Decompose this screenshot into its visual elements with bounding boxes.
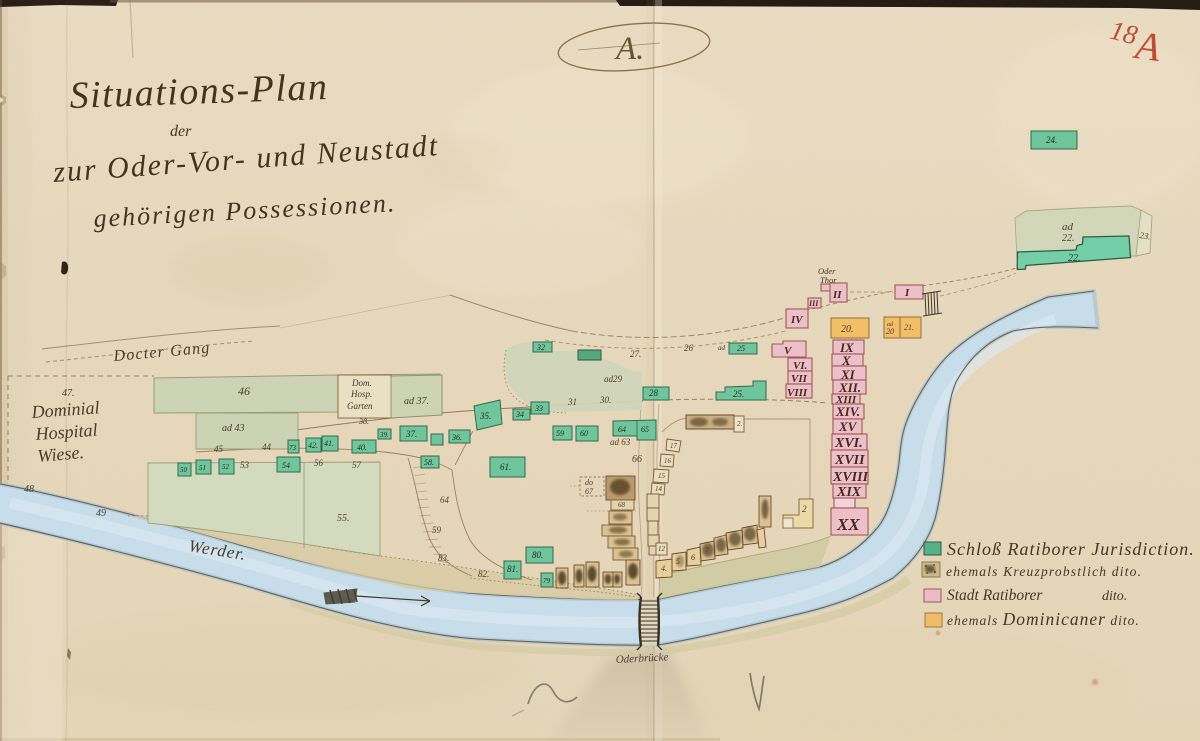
svg-text:47.: 47. xyxy=(62,388,75,399)
svg-text:20: 20 xyxy=(886,327,894,336)
svg-text:II: II xyxy=(832,289,842,301)
svg-text:35.: 35. xyxy=(479,411,491,421)
svg-text:IV: IV xyxy=(790,314,804,326)
svg-text:81.: 81. xyxy=(507,564,518,574)
svg-text:59: 59 xyxy=(556,429,564,438)
svg-text:45: 45 xyxy=(214,444,224,454)
svg-text:79: 79 xyxy=(543,577,551,585)
svg-text:2.: 2. xyxy=(737,420,743,428)
svg-text:55.: 55. xyxy=(337,513,350,524)
svg-text:20.: 20. xyxy=(841,324,854,335)
svg-text:64: 64 xyxy=(618,425,626,434)
svg-text:65: 65 xyxy=(641,425,649,434)
svg-text:44: 44 xyxy=(262,442,272,452)
svg-text:14: 14 xyxy=(655,485,663,493)
svg-text:X: X xyxy=(841,353,851,368)
svg-text:ad 37.: ad 37. xyxy=(404,396,429,407)
svg-text:40.: 40. xyxy=(357,443,367,452)
svg-text:VI.: VI. xyxy=(793,360,807,372)
svg-text:15: 15 xyxy=(658,472,666,480)
svg-text:XX: XX xyxy=(836,515,860,534)
svg-text:53: 53 xyxy=(240,460,250,470)
svg-text:42.: 42. xyxy=(308,441,318,450)
svg-text:24.: 24. xyxy=(1046,135,1057,145)
svg-text:22.: 22. xyxy=(1068,253,1081,264)
svg-text:26: 26 xyxy=(684,343,694,353)
svg-text:VIII: VIII xyxy=(787,387,808,399)
svg-text:XVII: XVII xyxy=(834,453,865,468)
svg-text:ad 43: ad 43 xyxy=(222,423,245,434)
svg-text:Stadt Ratiborer: Stadt Ratiborer xyxy=(947,587,1043,604)
svg-text:31: 31 xyxy=(567,397,577,407)
svg-text:56: 56 xyxy=(314,458,324,468)
svg-text:dito.: dito. xyxy=(1102,589,1127,604)
svg-text:XVI.: XVI. xyxy=(834,436,863,451)
svg-text:36.: 36. xyxy=(451,433,462,442)
svg-text:XV: XV xyxy=(838,419,858,434)
svg-text:VII: VII xyxy=(791,373,808,385)
svg-text:III: III xyxy=(808,299,819,308)
svg-text:22.: 22. xyxy=(1062,233,1075,244)
svg-text:23.: 23. xyxy=(1139,230,1152,241)
svg-text:Thor: Thor xyxy=(820,275,837,285)
svg-text:38.: 38. xyxy=(358,417,369,426)
svg-text:58.: 58. xyxy=(424,458,434,467)
svg-text:16: 16 xyxy=(664,457,672,465)
svg-text:82.: 82. xyxy=(478,569,489,579)
svg-text:ad 63: ad 63 xyxy=(610,437,631,447)
svg-text:I: I xyxy=(904,287,910,299)
svg-text:41.: 41. xyxy=(324,439,334,448)
svg-text:37.: 37. xyxy=(405,429,417,439)
svg-text:XII.: XII. xyxy=(838,380,861,395)
svg-text:Dom.: Dom. xyxy=(351,378,372,388)
svg-text:Hosp.: Hosp. xyxy=(350,389,372,399)
svg-text:ehemals Kreuzprobstlich dito.: ehemals Kreuzprobstlich dito. xyxy=(946,564,1142,579)
svg-text:46: 46 xyxy=(238,384,250,398)
svg-text:54: 54 xyxy=(282,461,290,470)
svg-text:Schloß Ratiborer Jurisdiction.: Schloß Ratiborer Jurisdiction. xyxy=(947,539,1195,559)
svg-text:30.: 30. xyxy=(599,395,611,405)
svg-text:6: 6 xyxy=(691,553,695,562)
svg-text:34: 34 xyxy=(515,410,524,419)
svg-text:60: 60 xyxy=(580,429,588,438)
svg-text:Wiese.: Wiese. xyxy=(37,442,85,466)
svg-text:21.: 21. xyxy=(904,323,914,332)
svg-text:57: 57 xyxy=(352,460,362,470)
svg-text:51: 51 xyxy=(199,464,206,472)
svg-text:80.: 80. xyxy=(532,550,543,560)
svg-text:2: 2 xyxy=(802,504,807,514)
svg-text:do: do xyxy=(585,478,593,487)
svg-text:5: 5 xyxy=(676,557,680,566)
svg-text:ad: ad xyxy=(718,344,726,352)
svg-text:4.: 4. xyxy=(661,564,667,573)
svg-text:48: 48 xyxy=(24,484,34,495)
svg-text:33: 33 xyxy=(534,404,543,413)
svg-text:XIV.: XIV. xyxy=(835,404,860,419)
svg-text:49: 49 xyxy=(96,508,106,519)
svg-text:59: 59 xyxy=(432,525,442,535)
svg-text:52: 52 xyxy=(222,463,230,471)
svg-text:ad: ad xyxy=(1062,221,1074,233)
svg-text:61.: 61. xyxy=(500,462,511,472)
svg-text:73: 73 xyxy=(289,444,297,452)
svg-text:A.: A. xyxy=(614,31,644,67)
svg-text:64: 64 xyxy=(440,495,450,505)
svg-text:12: 12 xyxy=(658,545,666,553)
svg-text:17: 17 xyxy=(670,442,678,450)
svg-text:67: 67 xyxy=(585,487,594,496)
svg-text:der: der xyxy=(170,123,192,140)
svg-text:25.: 25. xyxy=(733,389,744,399)
svg-text:ad29: ad29 xyxy=(604,374,623,384)
svg-text:50: 50 xyxy=(180,466,188,474)
svg-text:68: 68 xyxy=(618,501,626,509)
svg-text:25: 25 xyxy=(737,344,745,353)
svg-text:28: 28 xyxy=(649,388,659,398)
svg-text:83.: 83. xyxy=(438,553,449,563)
svg-text:XVIII: XVIII xyxy=(832,470,869,485)
svg-text:39.: 39. xyxy=(379,431,389,439)
svg-text:XIX: XIX xyxy=(836,485,862,500)
svg-text:Garten: Garten xyxy=(347,401,373,411)
svg-text:27.: 27. xyxy=(630,349,641,359)
svg-text:66: 66 xyxy=(632,454,642,465)
svg-text:32: 32 xyxy=(536,343,545,352)
